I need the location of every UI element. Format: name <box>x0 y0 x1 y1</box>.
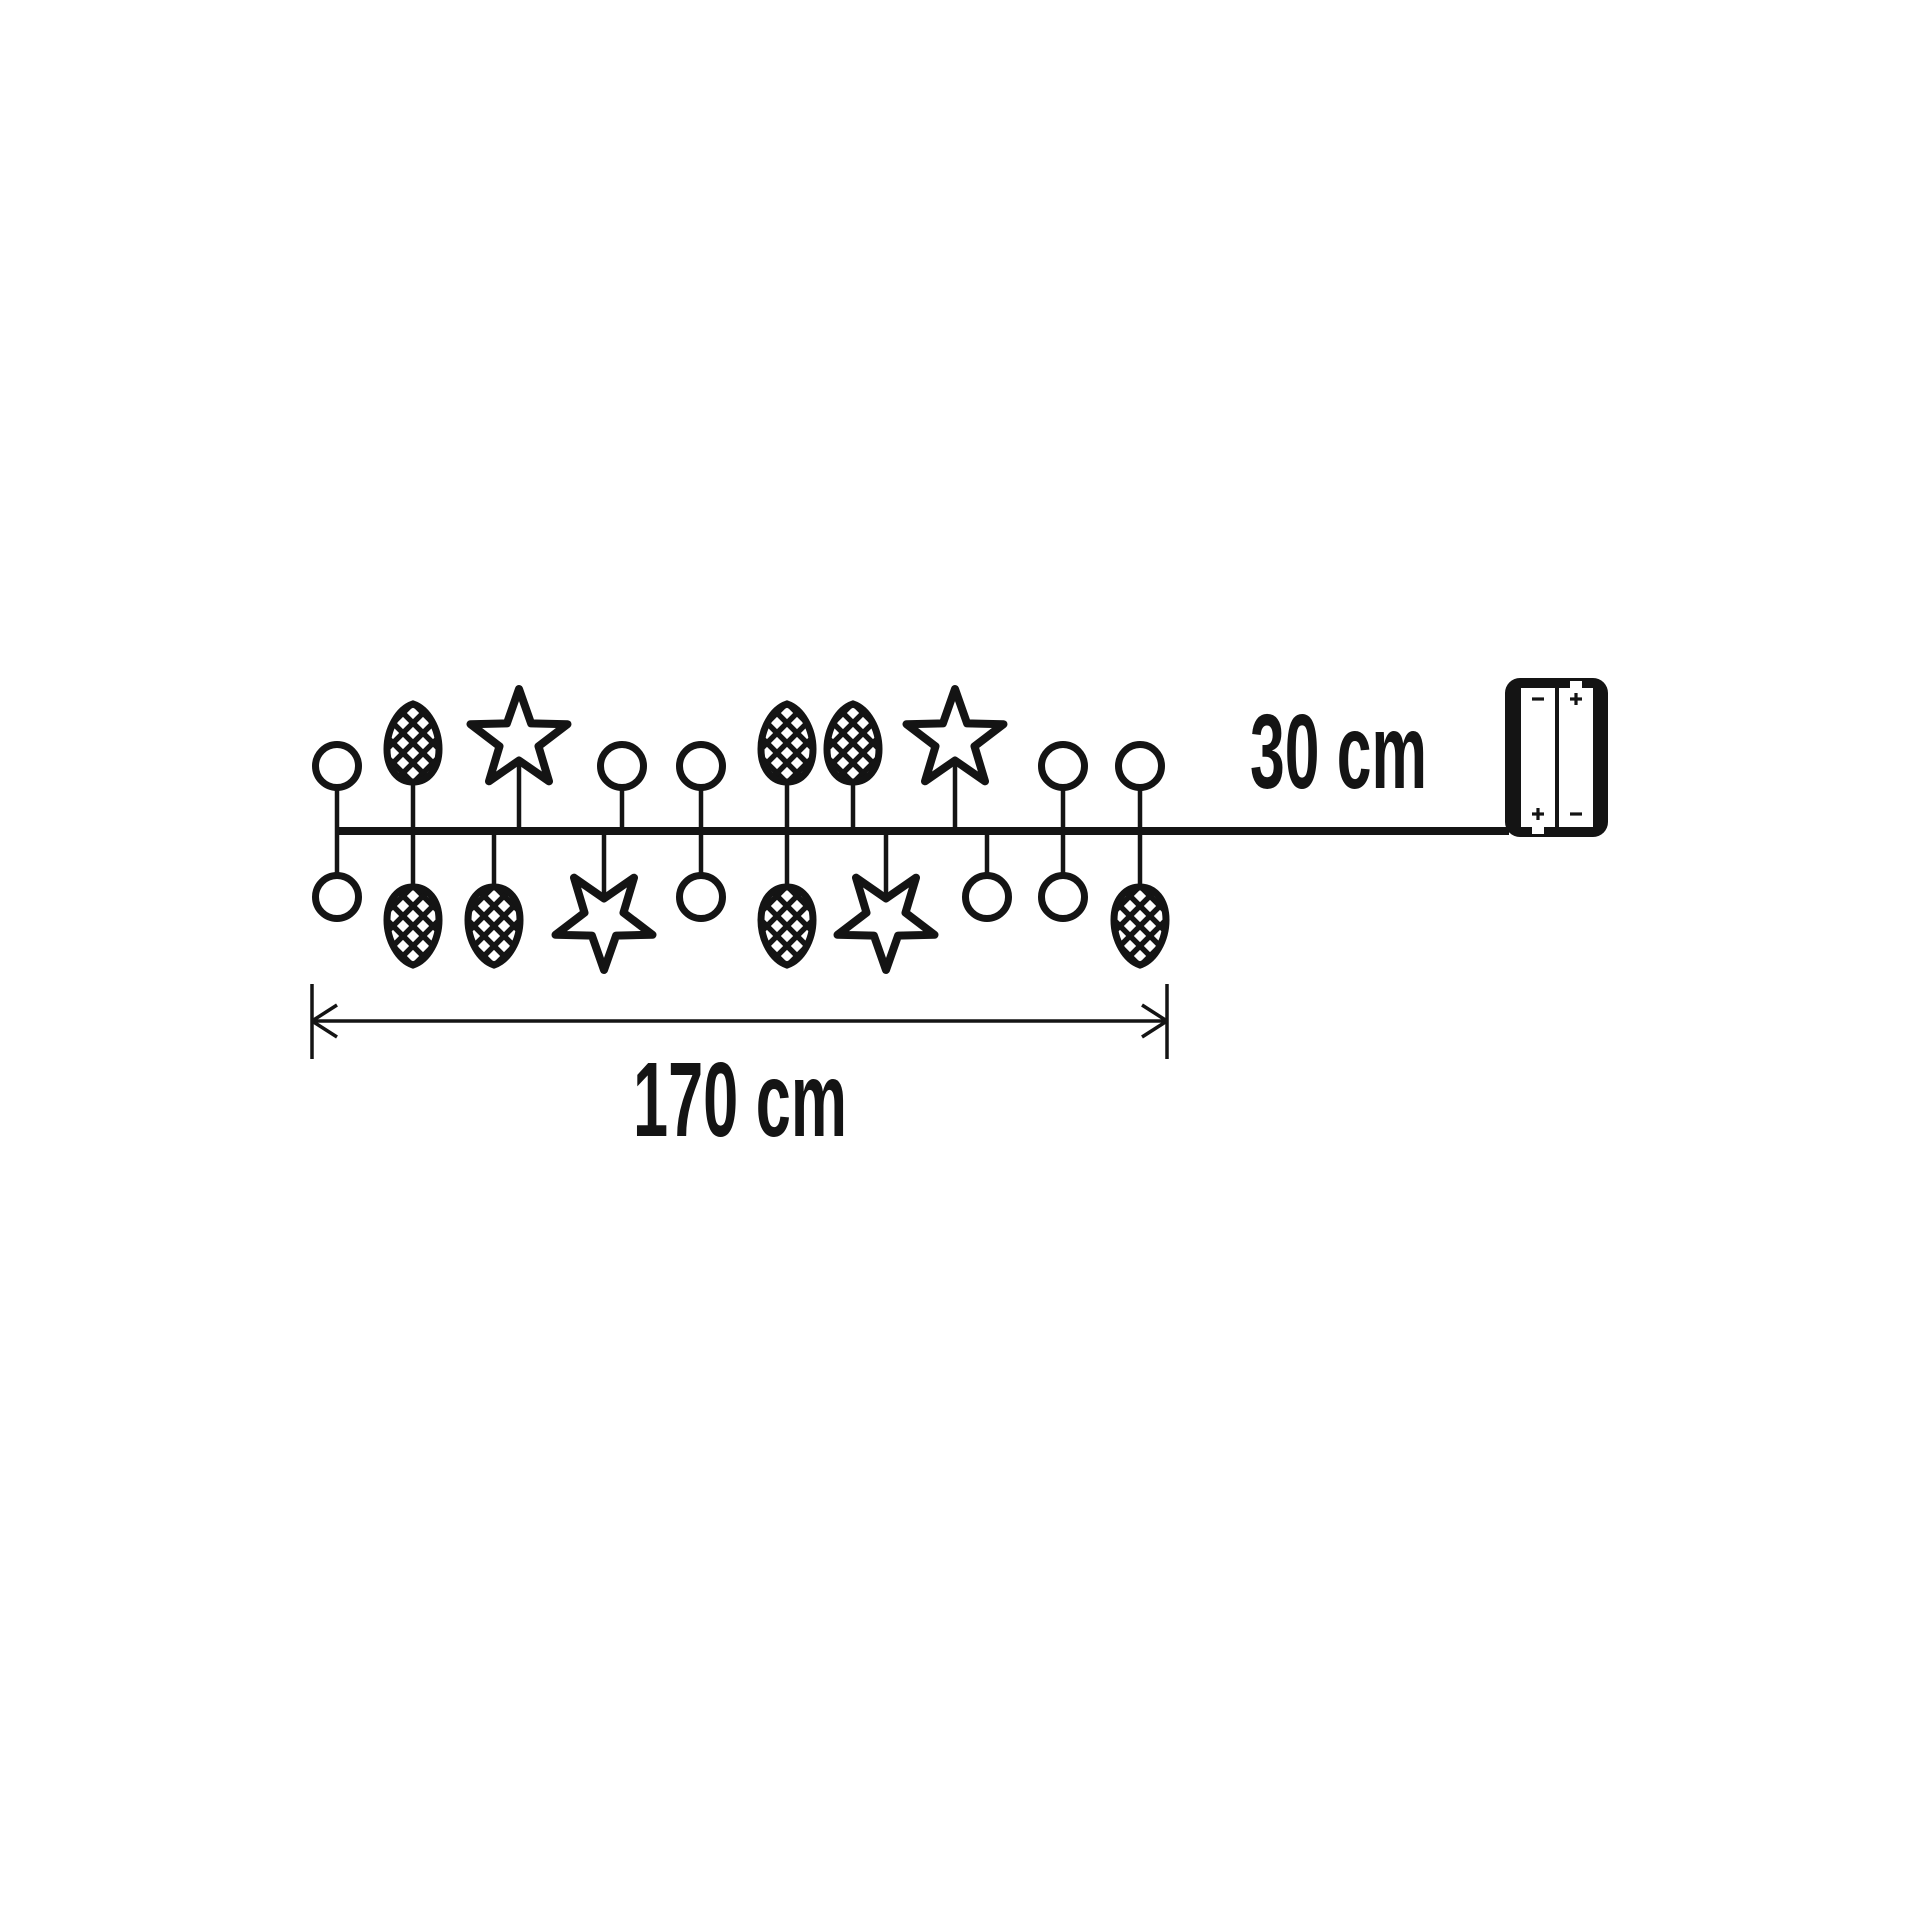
lead-length-label: 30 cm <box>1250 693 1427 811</box>
top-circle-ornament <box>1119 745 1162 788</box>
bottom-circle-ornament <box>966 876 1009 919</box>
bottom-circle-ornament <box>316 876 359 919</box>
bottom-circle-ornament <box>680 876 723 919</box>
top-circle-ornament <box>316 745 359 788</box>
light-chain-diagram: 30 cm 170 cm <box>0 0 1920 1920</box>
top-circle-ornament <box>1042 745 1085 788</box>
battery-box <box>1505 678 1608 837</box>
dimension-label: 170 cm <box>633 1041 847 1159</box>
diagram-canvas: 30 cm 170 cm <box>0 0 1920 1920</box>
bottom-circle-ornament <box>1042 876 1085 919</box>
top-circle-ornament <box>601 745 644 788</box>
top-circle-ornament <box>680 745 723 788</box>
